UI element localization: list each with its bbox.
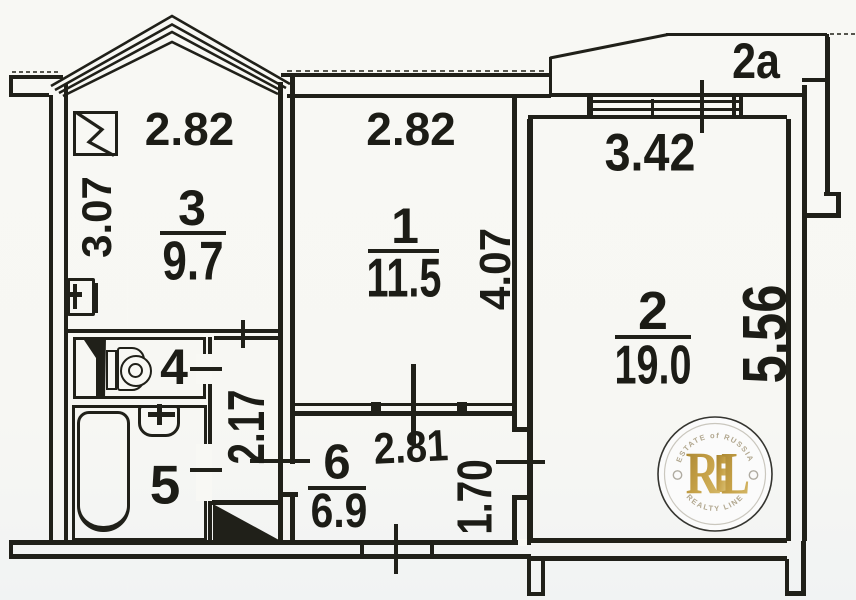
svg-text:L: L (721, 441, 750, 508)
svg-text:R: R (686, 440, 721, 507)
